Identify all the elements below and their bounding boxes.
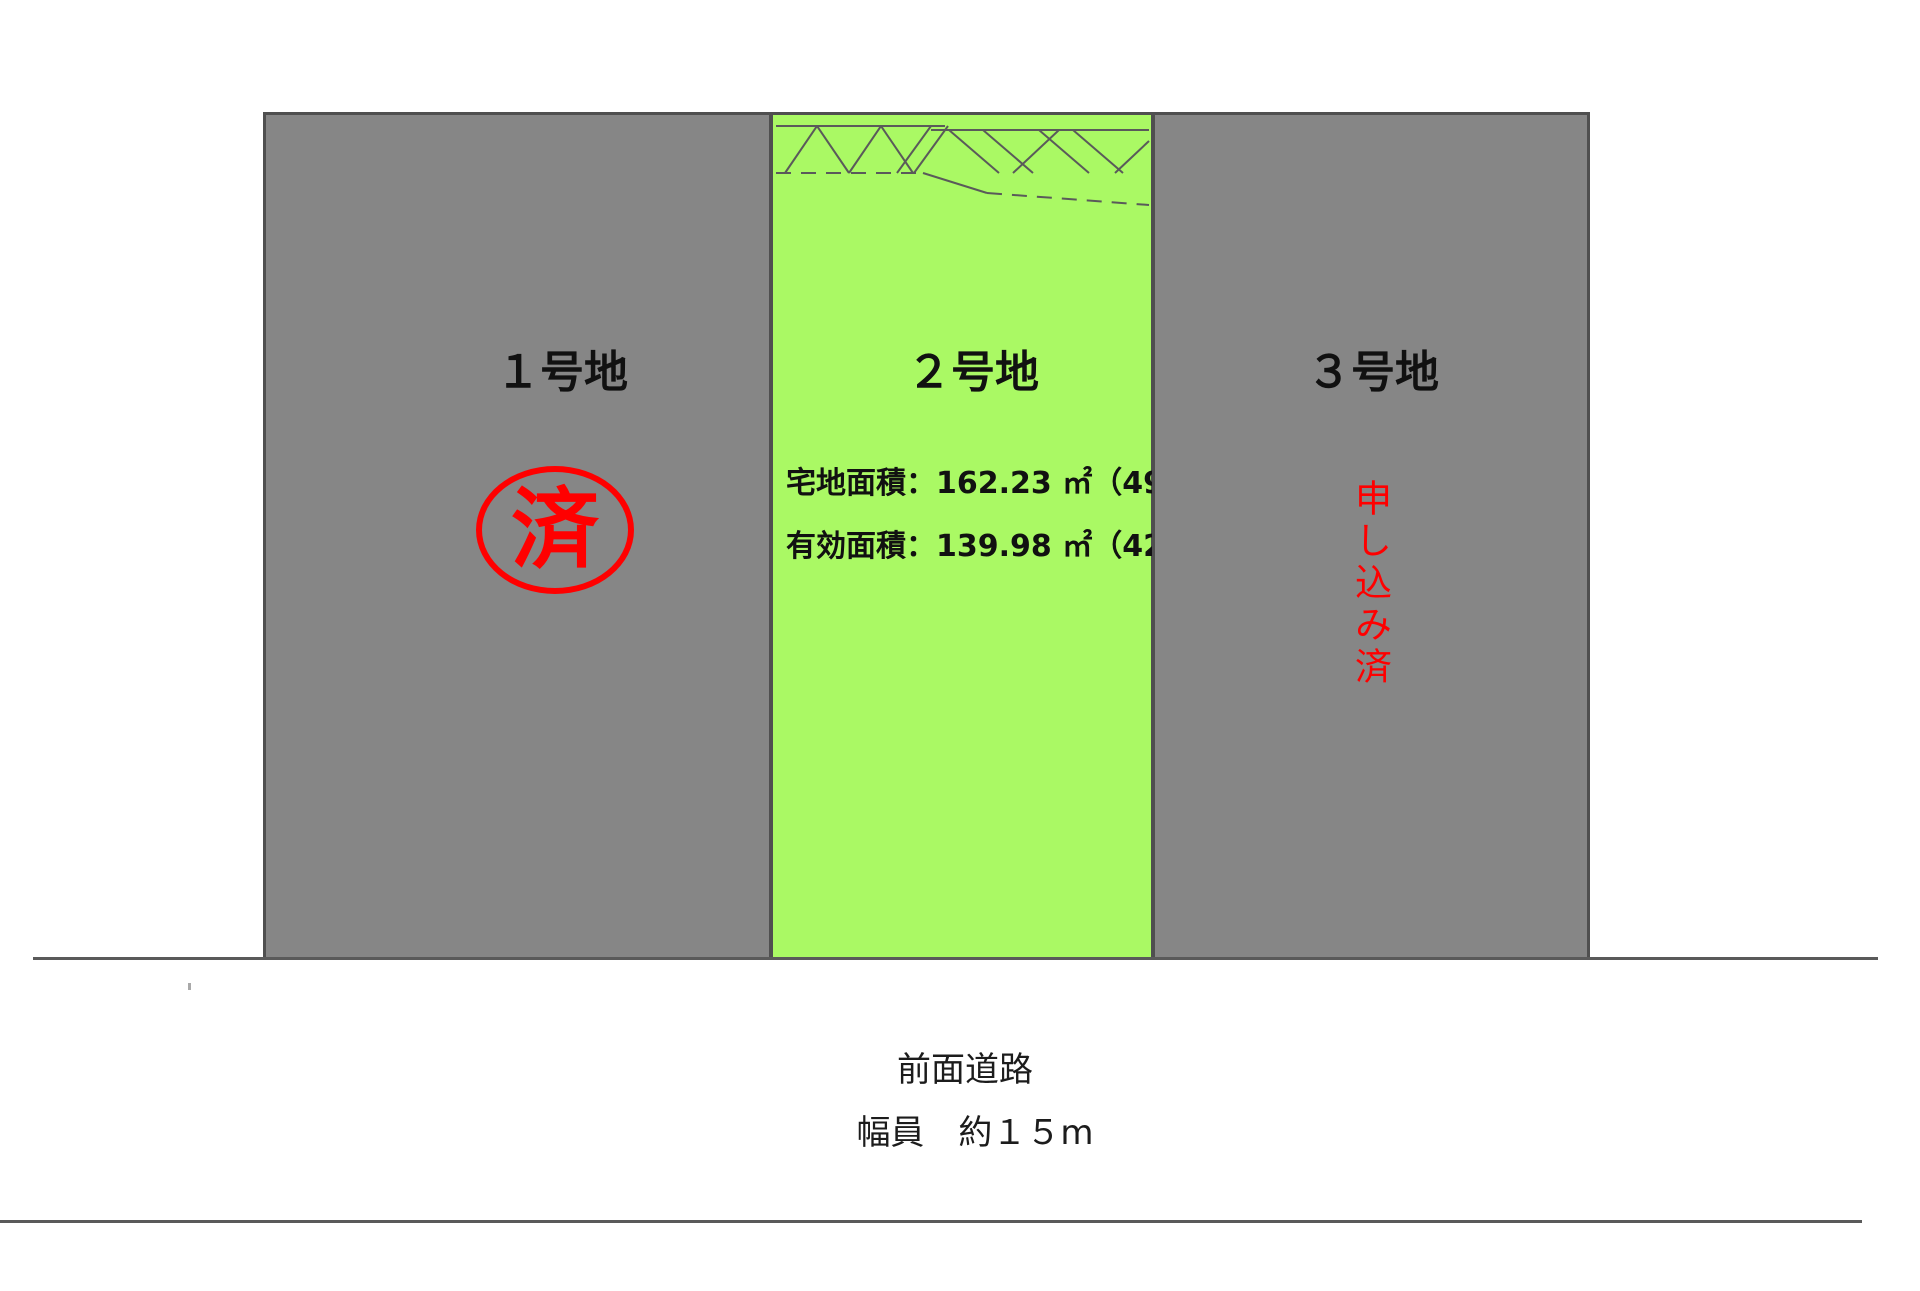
road-boundary-line [33, 957, 1878, 960]
road-name-label: 前面道路 [897, 1053, 1033, 1087]
plot-3-area: ３号地 申し込み済 [1152, 112, 1590, 960]
sold-stamp-circle: 済 [476, 466, 634, 594]
plot-layout-diagram: １号地 済 [0, 0, 1920, 1291]
plot-3-label: ３号地 [1307, 351, 1439, 395]
road-width-label: 幅員 約１５m [856, 1116, 1093, 1150]
plot-1-label: １号地 [496, 351, 628, 395]
plot-2-area: ２号地 宅地面積：162.23 ㎡（49.07 坪） 有効面積：139.98 ㎡… [770, 112, 1154, 960]
road-far-edge-line [0, 1220, 1862, 1223]
boundary-hatch-pattern [773, 115, 1151, 215]
plot-2-label: ２号地 [907, 351, 1039, 395]
sold-stamp-text: 済 [511, 486, 599, 574]
plot-3-status-text: 申し込み済 [1352, 479, 1389, 689]
plot-1-area: １号地 済 [263, 112, 772, 960]
boundary-tick-mark [188, 983, 191, 990]
